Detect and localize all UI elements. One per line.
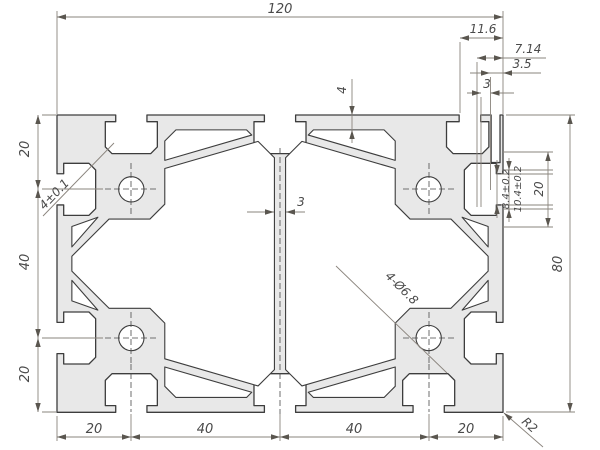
- dim-lip-offset: 3.5: [512, 57, 531, 71]
- label-corner-radius: R2: [519, 414, 540, 435]
- dim-overall-width: 120: [268, 2, 293, 17]
- dim-bottom-3: 40: [346, 422, 363, 437]
- dim-bottom-2: 40: [197, 422, 214, 437]
- dim-slot-span: 20: [532, 181, 546, 197]
- dim-web: 3: [297, 195, 305, 209]
- dim-slot-opening: 8.4±0.2: [501, 169, 512, 209]
- dim-left-bottom: 20: [18, 366, 33, 383]
- dim-left-top: 20: [18, 141, 33, 158]
- corner-hole-top-right: [416, 177, 441, 202]
- drawing-canvas: 120 11.6 7.14 3.5 3 4 80 8.4±0.2 10.4±0.…: [0, 0, 600, 450]
- dim-left-mid: 40: [18, 254, 33, 271]
- label-lip-thickness: 4±0.1: [36, 176, 72, 212]
- dim-slot-cavity: 10.4±0.2: [513, 166, 524, 213]
- dim-slot-depth: 7.14: [515, 42, 542, 56]
- dim-bottom-4: 20: [458, 422, 475, 437]
- dim-bottom-1: 20: [86, 422, 103, 437]
- dim-wall-small: 3: [483, 77, 491, 91]
- corner-hole-top-left: [119, 177, 144, 202]
- dim-top-wall: 4: [335, 86, 349, 94]
- corner-hole-bottom-left: [119, 325, 144, 350]
- dim-overall-height: 80: [551, 256, 566, 273]
- dim-top-offset: 11.6: [470, 22, 497, 36]
- profile-drawing: 120 11.6 7.14 3.5 3 4 80 8.4±0.2 10.4±0.…: [0, 0, 600, 450]
